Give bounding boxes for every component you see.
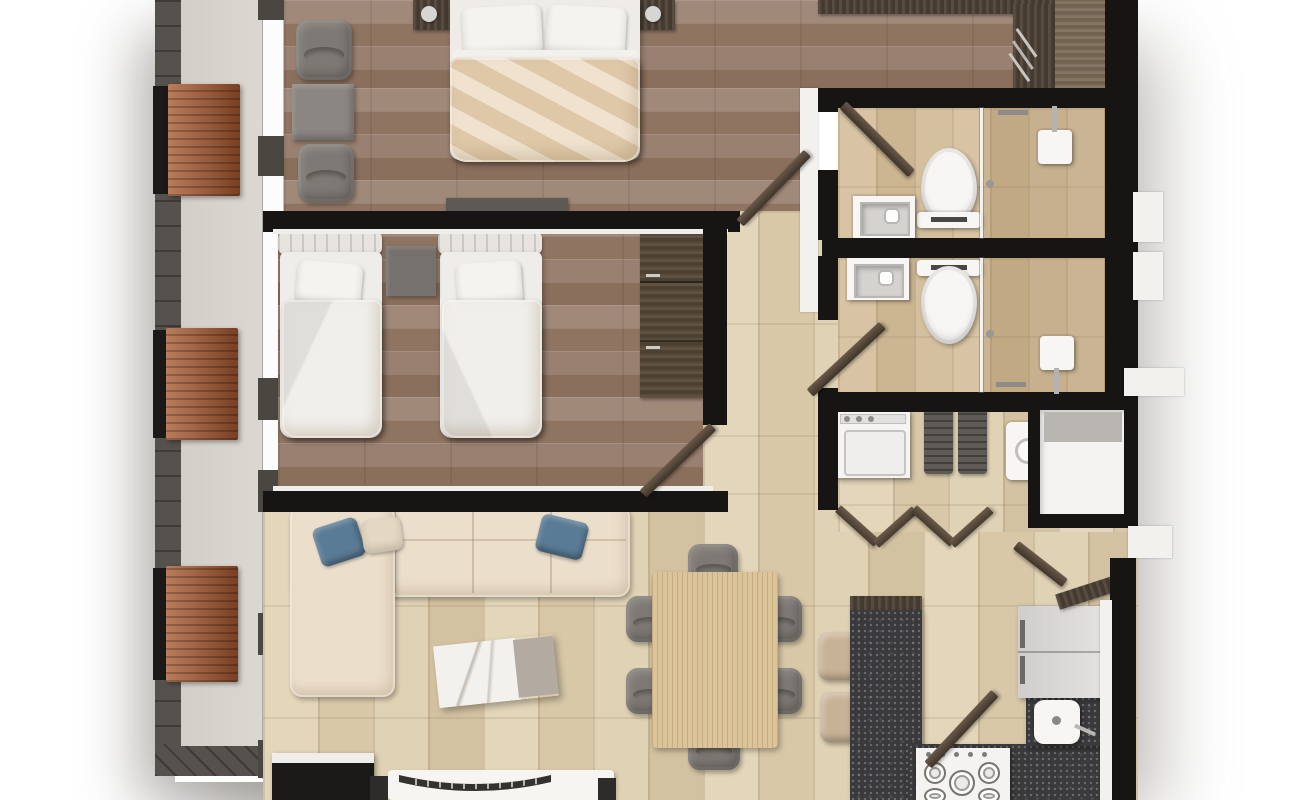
sink-faucet <box>880 272 892 284</box>
sideboard <box>272 753 374 800</box>
media-console <box>446 198 568 212</box>
wall-face-strip <box>273 229 728 234</box>
window-ledge <box>1133 192 1163 242</box>
wardrobe-divider <box>640 281 703 283</box>
window-ledge <box>1124 368 1184 396</box>
wall-bath-south <box>818 392 1138 412</box>
bath2-shower-zone <box>982 258 1105 392</box>
wall-bath-west <box>818 256 838 320</box>
window-ledge <box>1128 526 1172 558</box>
shower-glass-partition <box>980 108 983 238</box>
towel-bar <box>998 110 1028 115</box>
shower-arm <box>1054 368 1059 394</box>
closet-hanging-unit <box>1013 4 1057 88</box>
bath1-shower-zone <box>982 108 1105 238</box>
wardrobe-handle <box>646 274 660 277</box>
toilet-tank <box>917 212 981 228</box>
wall-bath-north <box>808 88 1138 108</box>
speaker <box>370 776 388 800</box>
speaker <box>598 778 616 800</box>
window-ledge <box>1133 252 1163 300</box>
refrigerator <box>1018 606 1108 698</box>
vanity-sink <box>853 196 915 238</box>
wardrobe-divider <box>640 340 703 342</box>
master-duvet <box>450 58 640 162</box>
window-frame-post <box>258 136 286 176</box>
laundry-closet-frame <box>1028 514 1138 528</box>
laundry-closet-back-panel <box>1044 412 1122 442</box>
wood-planter <box>168 84 240 196</box>
wall-bedroom2-south <box>263 491 728 512</box>
washer-knob <box>844 416 850 422</box>
fridge-handle <box>1020 656 1025 684</box>
kitchen-sink <box>1034 700 1080 744</box>
chair-seam <box>304 47 343 63</box>
window-frame-post <box>258 0 286 20</box>
wardrobe <box>640 224 703 398</box>
lounge-chair <box>296 20 352 80</box>
vanity-sink <box>847 258 909 300</box>
shower-valve <box>986 330 994 338</box>
laundry-basket <box>958 406 987 474</box>
table-lamp <box>421 6 437 22</box>
laundry-closet-frame <box>1124 392 1138 528</box>
coffee-table-tray <box>513 636 559 698</box>
sink-basin <box>854 264 904 298</box>
twin-duvet <box>282 300 382 438</box>
wood-planter <box>166 566 238 682</box>
coffee-table-marble-top <box>433 638 521 708</box>
wall-kitchen-east <box>1110 558 1136 800</box>
sink-faucet <box>886 210 898 222</box>
floor-plan-canvas <box>0 0 1300 800</box>
laundry-closet-frame <box>1028 408 1040 520</box>
toilet-flush-slit <box>931 217 967 222</box>
wall-laundry-west <box>818 412 838 510</box>
wall-bath-west <box>818 170 838 240</box>
stove-burner <box>924 788 946 800</box>
closet-side-panel <box>1055 0 1110 88</box>
stove-burner <box>978 788 1000 800</box>
shower-valve <box>986 180 994 188</box>
stove-burner <box>924 762 946 784</box>
coffee-table <box>433 634 559 708</box>
curved-tv <box>396 772 554 798</box>
shower-head <box>1040 336 1074 370</box>
wall-bath-west-face <box>800 88 818 312</box>
towel-bar <box>996 382 1026 387</box>
sideboard-top <box>272 753 374 763</box>
twin-duvet <box>442 300 542 438</box>
shower-arm <box>1052 106 1057 132</box>
stove-burner <box>949 770 975 796</box>
sofa-cushion-seam <box>472 511 474 593</box>
shower-head <box>1038 130 1072 164</box>
wall-bath-west <box>818 88 838 112</box>
washing-machine <box>836 410 910 478</box>
dining-table <box>652 572 778 748</box>
fridge-handle <box>1020 620 1025 648</box>
nightstand <box>386 246 436 296</box>
washer-lid <box>844 430 906 476</box>
shower-glass-partition <box>980 258 983 392</box>
wardrobe-handle <box>646 346 660 349</box>
fridge-door-seam <box>1018 651 1108 653</box>
twin-headboard <box>438 232 542 254</box>
lounge-chair <box>298 144 354 202</box>
wood-planter <box>166 328 238 440</box>
table-lamp <box>645 6 661 22</box>
cream-cushion <box>360 515 404 554</box>
chair-seam <box>306 170 345 185</box>
kitchen-cabinet-face <box>1100 600 1112 800</box>
sink-basin <box>860 202 910 236</box>
stove-burner <box>978 762 1000 784</box>
twin-headboard <box>278 232 382 254</box>
wall-bath-divider <box>822 238 1105 258</box>
side-table <box>292 84 354 140</box>
wall-bedroom2-east <box>703 211 727 425</box>
laundry-basket <box>924 406 953 474</box>
sink-drain <box>1052 716 1061 725</box>
